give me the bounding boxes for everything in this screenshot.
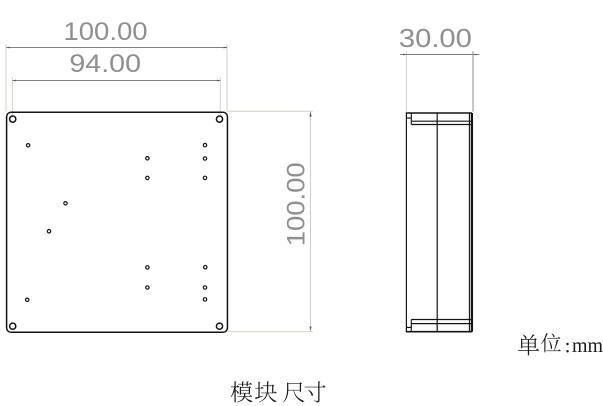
svg-text:30.00: 30.00 xyxy=(399,23,472,53)
svg-text:100.00: 100.00 xyxy=(63,19,147,46)
svg-text:100.00: 100.00 xyxy=(284,162,311,246)
svg-text:94.00: 94.00 xyxy=(69,51,141,78)
svg-text:mm: mm xyxy=(572,333,603,357)
svg-text::: : xyxy=(565,333,571,357)
